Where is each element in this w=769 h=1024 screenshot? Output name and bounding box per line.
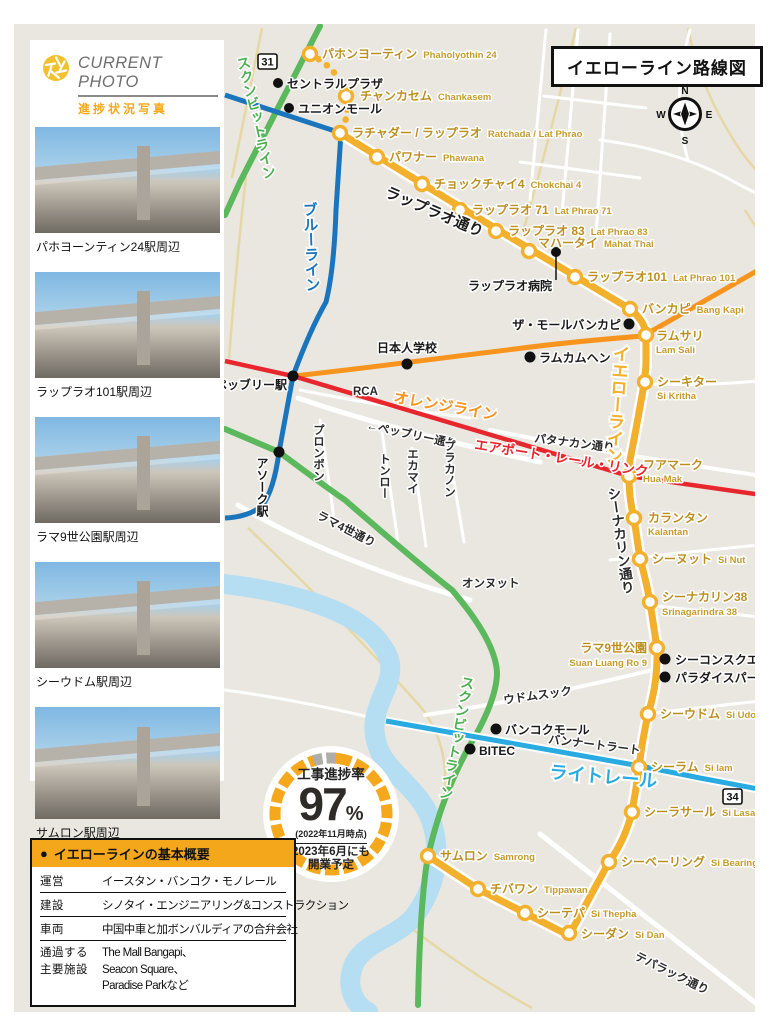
progress-photo: ラップラオ101駅周辺 bbox=[35, 272, 220, 408]
summary-row-value: シノタイ・エンジニアリング&コンストラクション bbox=[102, 897, 348, 913]
poi-label-phetchaburi-station: ペッブリー駅 bbox=[215, 377, 288, 392]
bangkokmall-dot bbox=[491, 724, 502, 735]
summary-box-body: 運営 イースタン・バンコク・モノレール 建設 シノタイ・エンジニアリング&コンス… bbox=[32, 867, 294, 1005]
camera-aperture-icon bbox=[42, 54, 70, 82]
progress-photo: シーウドム駅周辺 bbox=[35, 562, 220, 698]
centralplaza-dot bbox=[273, 78, 283, 88]
progress-note: 2023年6月にも 開業予定 bbox=[292, 846, 370, 872]
station-marker bbox=[490, 225, 503, 238]
station-marker bbox=[422, 850, 435, 863]
poi-label-unionmall: ユニオンモール bbox=[298, 102, 382, 116]
route-shield-34: 34 bbox=[723, 789, 742, 804]
summary-row-value-line1: The Mall Bangapi、 bbox=[102, 945, 286, 962]
route-shield-34-label: 34 bbox=[726, 792, 739, 804]
summary-row-value: イースタン・バンコク・モノレール bbox=[102, 873, 286, 889]
station-label: チョックチャイ4Chokchai 4 bbox=[434, 177, 582, 191]
bullet-icon: ● bbox=[40, 846, 48, 861]
compass-s: S bbox=[682, 136, 689, 147]
station-marker bbox=[523, 245, 536, 258]
station-marker bbox=[651, 642, 664, 655]
road-label-phrakanong: プラカノン bbox=[443, 440, 456, 498]
station-label-en: Si Kritha bbox=[657, 391, 697, 402]
poi-label-asok-station: アソーク駅 bbox=[255, 457, 269, 518]
asok-dot bbox=[274, 447, 285, 458]
station-marker bbox=[340, 90, 353, 103]
station-label: マハータイMahat Thai bbox=[538, 236, 654, 250]
station-label: シーラムSi Iam bbox=[651, 760, 733, 774]
summary-row: 運営 イースタン・バンコク・モノレール bbox=[40, 869, 286, 893]
station-label: カランタン bbox=[648, 511, 708, 525]
station-label-en: Srinagarindra 38 bbox=[662, 607, 737, 618]
construction-photo-image bbox=[35, 417, 220, 523]
paradise-dot bbox=[660, 672, 671, 683]
summary-row-label: 通過する 主要施設 bbox=[40, 945, 102, 995]
station-marker bbox=[624, 303, 637, 316]
summary-row: 通過する 主要施設 The Mall Bangapi、 Seacon Squar… bbox=[40, 941, 286, 998]
sidebar-header: CURRENT PHOTO 進捗状況写真 bbox=[30, 40, 224, 121]
station-marker bbox=[644, 596, 657, 609]
map-title: イエローライン路線図 bbox=[551, 46, 763, 87]
compass-e: E bbox=[706, 110, 713, 121]
progress-note-line1: 2023年6月にも bbox=[292, 846, 370, 859]
photo-caption: シーウドム駅周辺 bbox=[35, 668, 220, 698]
summary-row-value-line2: Seacon Square、 bbox=[102, 962, 286, 979]
station-label: パホンヨーティンPhaholyothin 24 bbox=[322, 47, 497, 61]
summary-box-title: イエローラインの基本概要 bbox=[54, 844, 210, 863]
station-marker bbox=[472, 883, 485, 896]
photo-caption: パホヨーンティン24駅周辺 bbox=[35, 233, 220, 263]
summary-row-label: 車両 bbox=[40, 921, 102, 937]
ramkhamhaeng-dot bbox=[525, 352, 536, 363]
poi-label-seacon: シーコンスクエア bbox=[675, 653, 769, 667]
summary-box-header: ● イエローラインの基本概要 bbox=[32, 840, 294, 867]
station-label: シーウドムSi Udom bbox=[660, 707, 765, 721]
line-label-blue: ブルーライン bbox=[300, 201, 320, 292]
station-label: フアマーク bbox=[643, 458, 703, 472]
construction-photo-image bbox=[35, 272, 220, 378]
poi-label-school: 日本人学校 bbox=[377, 340, 438, 355]
summary-row: 車両 中国中車と加ボンバルディアの合弁会社 bbox=[40, 917, 286, 941]
road-label-rca: RCA bbox=[353, 386, 378, 398]
route-map-page: 31 34 N S W E パホンヨーティンPhaholyothin 24 チャ… bbox=[0, 0, 769, 1024]
station-marker bbox=[603, 856, 616, 869]
summary-row-label-line1: 通過する bbox=[40, 945, 102, 962]
construction-photo-image bbox=[35, 562, 220, 668]
station-marker bbox=[626, 806, 639, 819]
poi-label-centralplaza: セントラルプラザ bbox=[287, 76, 383, 91]
station-label: サムロンSamrong bbox=[440, 849, 535, 863]
phetchaburi-dot bbox=[288, 371, 299, 382]
station-label: チャンカセムChankasem bbox=[360, 89, 491, 103]
summary-row-label-line2: 主要施設 bbox=[40, 962, 102, 979]
route-shield-31: 31 bbox=[258, 54, 277, 69]
summary-row: 建設 シノタイ・エンジニアリング&コンストラクション bbox=[40, 893, 286, 917]
road-label-onnut: オンヌット bbox=[462, 577, 520, 590]
yellow-line-summary-box: ● イエローラインの基本概要 運営 イースタン・バンコク・モノレール 建設 シノ… bbox=[30, 838, 296, 1007]
photo-sidebar: CURRENT PHOTO 進捗状況写真 パホヨーンティン24駅周辺 ラップラオ… bbox=[30, 40, 224, 781]
summary-row-label: 運営 bbox=[40, 873, 102, 889]
bitec-dot bbox=[465, 744, 476, 755]
poi-label-ramkhamhaeng: ラムカムヘン bbox=[539, 351, 611, 365]
summary-row-label: 建設 bbox=[40, 897, 102, 913]
station-marker bbox=[334, 127, 347, 140]
station-label-en: Hua Mak bbox=[643, 474, 683, 485]
station-marker bbox=[371, 151, 384, 164]
station-label: ラムサリ bbox=[656, 329, 704, 343]
poi-label-bangkokmall: バンコクモール bbox=[505, 723, 590, 737]
progress-value: 97% bbox=[299, 781, 364, 827]
progress-asof: (2022年11月時点) bbox=[295, 827, 367, 840]
station-marker bbox=[640, 329, 653, 342]
compass-w: W bbox=[656, 110, 666, 121]
station-label: パワナーPhawana bbox=[389, 150, 485, 164]
construction-photo-image bbox=[35, 127, 220, 233]
station-marker bbox=[628, 512, 641, 525]
station-marker bbox=[519, 907, 532, 920]
poi-label-mallbangkapi: ザ・モールバンカピ bbox=[512, 318, 621, 332]
station-label-en: Suan Luang Ro 9 bbox=[569, 658, 647, 669]
poi-label-paradise: パラダイスパーク bbox=[675, 670, 769, 685]
summary-row-value-line3: Paradise Parkなど bbox=[102, 978, 286, 995]
station-marker bbox=[416, 178, 429, 191]
sidebar-title-en: CURRENT PHOTO bbox=[78, 54, 218, 97]
road-label-ekamai: エカマイ bbox=[406, 448, 419, 494]
progress-photo: ラマ9世公園駅周辺 bbox=[35, 417, 220, 553]
progress-divider bbox=[295, 843, 367, 844]
seacon-dot bbox=[660, 654, 671, 665]
progress-photo: サムロン駅周辺 bbox=[35, 707, 220, 849]
station-label: シーナカリン38 bbox=[662, 590, 748, 604]
sidebar-header-text: CURRENT PHOTO 進捗状況写真 bbox=[78, 54, 218, 117]
station-label-en: Kalantan bbox=[648, 527, 688, 538]
mallbangkapi-dot bbox=[624, 319, 635, 330]
school-dot bbox=[402, 359, 413, 370]
unionmall-dot bbox=[284, 103, 294, 113]
station-marker bbox=[639, 376, 652, 389]
station-marker bbox=[634, 553, 647, 566]
station-label: シーヌットSi Nut bbox=[652, 552, 746, 566]
station-label: シーラサールSi Lasalle bbox=[644, 805, 766, 819]
poi-label-bitec: BITEC bbox=[479, 744, 515, 758]
progress-number: 97 bbox=[299, 778, 346, 830]
route-shield-31-label: 31 bbox=[261, 57, 273, 69]
progress-photo: パホヨーンティン24駅周辺 bbox=[35, 127, 220, 263]
station-marker bbox=[642, 708, 655, 721]
photo-caption: ラマ9世公園駅周辺 bbox=[35, 523, 220, 553]
station-label: ラマ9世公園 bbox=[580, 640, 647, 655]
progress-note-line2: 開業予定 bbox=[292, 859, 370, 872]
station-marker bbox=[569, 271, 582, 284]
sidebar-title-jp: 進捗状況写真 bbox=[78, 100, 218, 117]
progress-percent-sign: % bbox=[346, 803, 364, 825]
road-label-phromphong: プロンポン bbox=[312, 424, 325, 482]
poi-label-hospital: ラップラオ病院 bbox=[468, 278, 552, 293]
construction-photo-image bbox=[35, 707, 220, 819]
station-label-en: Lam Sali bbox=[656, 345, 695, 356]
summary-row-value: The Mall Bangapi、 Seacon Square、 Paradis… bbox=[102, 945, 286, 995]
road-label-thonglor: トンロー bbox=[378, 453, 390, 499]
station-label: シーキター bbox=[657, 375, 717, 389]
station-marker bbox=[304, 48, 317, 61]
photo-caption: ラップラオ101駅周辺 bbox=[35, 378, 220, 408]
station-marker bbox=[563, 927, 576, 940]
compass-n: N bbox=[681, 86, 688, 97]
summary-row-value: 中国中車と加ボンバルディアの合弁会社 bbox=[102, 921, 297, 937]
